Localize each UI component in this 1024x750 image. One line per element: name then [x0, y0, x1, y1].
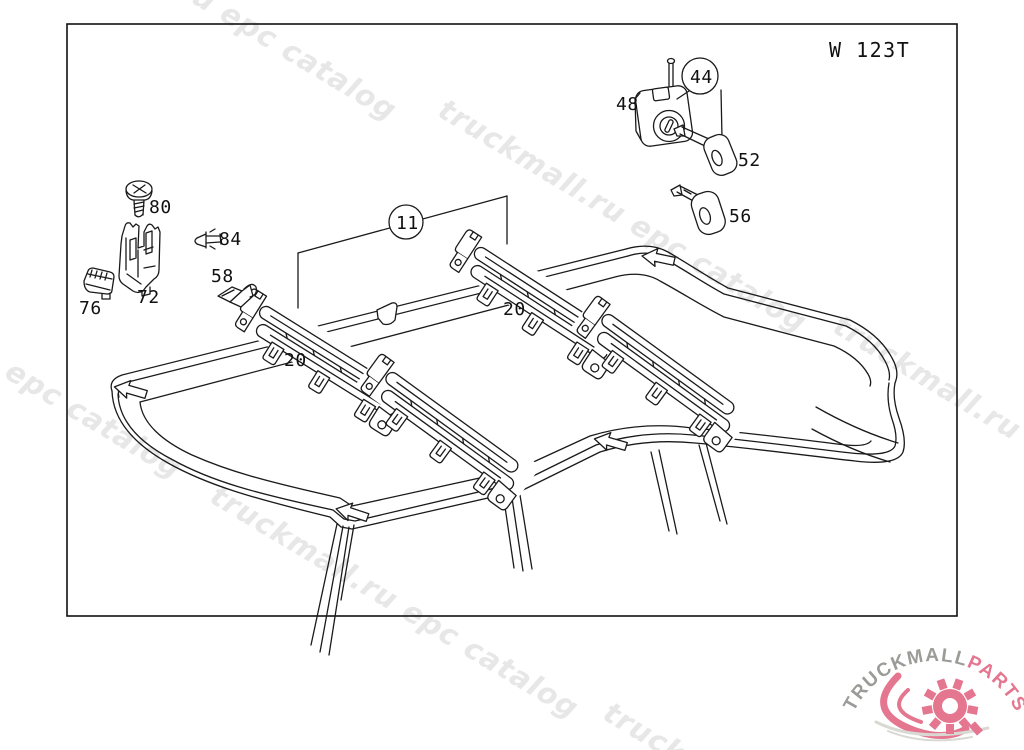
truckmall-logo: TRUCKMALLPARTS: [840, 645, 1024, 740]
rivet-84-drawing: [195, 229, 221, 249]
catalog-page: truckmall.ru epc catalog truckmall.ru ep…: [0, 0, 1024, 750]
clamp-76-drawing: [84, 268, 114, 299]
part-label-76: 76: [79, 298, 102, 319]
part-label-52: 52: [738, 150, 761, 171]
svg-text:TRUCKMALLPARTS: TRUCKMALLPARTS: [840, 645, 1024, 716]
part-label-44: 44: [690, 67, 713, 88]
bracket-72-drawing: [119, 223, 160, 296]
key-56-drawing: [671, 185, 728, 237]
roof-rack-bar-front: [436, 226, 757, 456]
part-label-80: 80: [149, 197, 172, 218]
part-label-48: 48: [616, 94, 639, 115]
key-52-drawing: [674, 125, 740, 178]
mount-arrow: [641, 247, 676, 268]
part-label-11: 11: [396, 213, 419, 234]
part-label-56: 56: [729, 206, 752, 227]
part-label-58: 58: [211, 266, 234, 287]
page-title: W 123T: [829, 38, 910, 62]
part-label-84: 84: [219, 229, 242, 250]
part-label-72: 72: [137, 287, 160, 308]
part-label-20: 20: [503, 299, 526, 320]
part-label-20: 20: [284, 350, 307, 371]
